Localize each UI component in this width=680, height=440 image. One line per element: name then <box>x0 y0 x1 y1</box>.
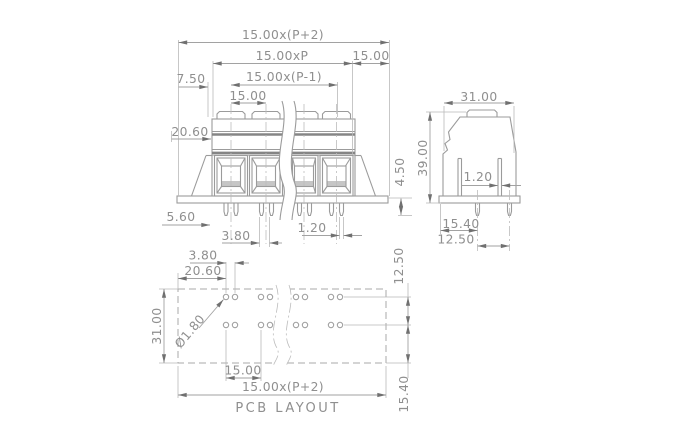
dim-side-pin-thickness: 1.20 <box>464 170 493 184</box>
pcb-layout-drawing: 3.80 20.60 Ø1.80 31.00 12.50 15.00 15.00… <box>150 247 411 416</box>
front-view-drawing: 15.00x(P+2) 15.00xP 15.00 7.50 15.00x(P-… <box>162 28 412 247</box>
dim-front-pitch-span-inner: 15.00x(P-1) <box>246 70 322 84</box>
dim-pcb-hole-diameter: Ø1.80 <box>172 312 208 351</box>
dim-pcb-edge-to-first-hole: 20.60 <box>184 264 221 278</box>
dim-front-flange-width: 5.60 <box>167 210 196 224</box>
dim-side-depth: 31.00 <box>460 90 497 104</box>
terminal-block-front-body <box>177 101 388 220</box>
terminal-block-side-body <box>439 110 520 216</box>
drawing-sheet: 15.00x(P+2) 15.00xP 15.00 7.50 15.00x(P-… <box>0 0 680 440</box>
dim-pcb-overall-depth: 31.00 <box>150 307 164 344</box>
dim-front-end-pitch: 15.00 <box>352 49 389 63</box>
dim-pcb-row-spacing: 12.50 <box>392 247 406 284</box>
technical-drawing: 15.00x(P+2) 15.00xP 15.00 7.50 15.00x(P-… <box>0 0 680 440</box>
side-base-plate <box>439 196 520 203</box>
dim-side-pin-row-spacing: 12.50 <box>437 233 474 247</box>
dim-front-half-pitch: 7.50 <box>177 72 206 86</box>
side-view-drawing: 31.00 39.00 1.20 15.40 12.50 <box>416 90 521 251</box>
dim-front-total-width: 15.00x(P+2) <box>242 28 324 42</box>
dim-front-pitch-span-all: 15.00xP <box>256 49 309 63</box>
dim-pcb-pitch: 15.00 <box>224 364 261 378</box>
dim-side-pin-row-offset: 15.40 <box>442 217 479 231</box>
dim-front-pin-length: 4.50 <box>393 158 407 187</box>
pcb-layout-title: PCB LAYOUT <box>235 401 340 416</box>
dim-front-pitch: 15.00 <box>229 89 266 103</box>
side-centerlines <box>478 190 510 251</box>
dim-front-pin-thickness: 1.20 <box>298 221 327 235</box>
dim-front-pin-pair-spacing: 3.80 <box>222 229 251 243</box>
side-pins <box>476 203 512 216</box>
dim-pcb-row-to-edge: 15.40 <box>397 375 411 412</box>
dim-front-body-offset: 20.60 <box>171 125 208 139</box>
dim-pcb-total-width: 15.00x(P+2) <box>242 380 324 394</box>
dim-side-height: 39.00 <box>416 139 430 176</box>
dim-pcb-hole-pair-spacing: 3.80 <box>189 249 218 263</box>
pcb-break-lines <box>273 285 291 367</box>
